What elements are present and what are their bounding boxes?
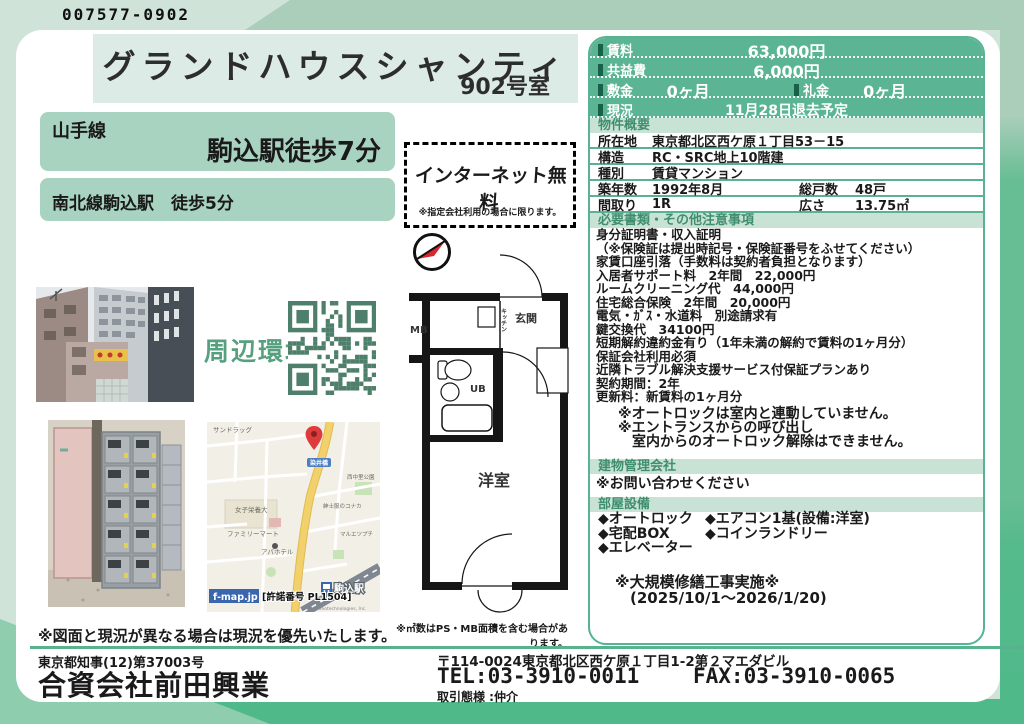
deposit-keymoney-row: 0ヶ月 0ヶ月 敷金 礼金 bbox=[590, 78, 983, 98]
renovation-note-line2: (2025/10/1～2026/1/20) bbox=[630, 587, 827, 608]
extra-note-line: 室内からのオートロック解除はできません。 bbox=[618, 435, 978, 449]
internet-free-badge: インターネット無料 ※指定会社利用の場合に限ります。 bbox=[404, 142, 576, 228]
label-marker bbox=[598, 84, 603, 96]
fee-label: 共益費 bbox=[607, 64, 646, 79]
extra-note-line: ※オートロックは室内と連動していません。 bbox=[618, 407, 978, 421]
notes-list: 身分証明書・収入証明 （※保険証は提出時記号・保険証番号をふせてください） 家賃… bbox=[596, 228, 981, 404]
figure-priority-note: ※図面と現況が異なる場合は現況を優先いたします。 bbox=[38, 625, 396, 646]
note-line: 電気・ｶﾞｽ・水道料 別途請求有 bbox=[596, 309, 981, 323]
note-line: 更新料：新賃料の1ヶ月分 bbox=[596, 390, 981, 404]
overview-row: 間取り1R 広さ13.75㎡ bbox=[590, 197, 983, 213]
plan-label-kitchen: キッチン bbox=[500, 308, 507, 332]
note-line: 鍵交換代 34100円 bbox=[596, 323, 981, 337]
deal-type: 取引態様 :仲介 bbox=[437, 688, 518, 705]
management-value: ※お問い合わせください bbox=[596, 473, 750, 493]
note-line: 住宅総合保険 2年間 20,000円 bbox=[596, 296, 981, 310]
rent-row: 63,000円 賃料 bbox=[590, 38, 983, 58]
label-marker bbox=[598, 44, 603, 56]
map-road-badge: 染井橋 bbox=[309, 459, 329, 467]
map-license: [許諾番号 PL1504] bbox=[262, 591, 351, 603]
room-number: 902号室 bbox=[460, 69, 550, 101]
equipment-item: ◆エアコン1基(設備:洋室) bbox=[705, 512, 870, 527]
price-table: 63,000円 賃料 6,000円 共益費 0ヶ月 0ヶ月 敷金 礼金 11月2… bbox=[590, 38, 983, 118]
label-marker bbox=[598, 104, 603, 116]
extra-note-line: ※エントランスからの呼び出し bbox=[618, 421, 978, 435]
label-marker bbox=[598, 64, 603, 76]
train-line-2-text: 南北線駒込駅 徒歩5分 bbox=[52, 189, 234, 214]
train-line-1-name: 山手線 bbox=[52, 117, 106, 143]
map-provider: f-map.jp bbox=[213, 592, 258, 603]
title-box: グランドハウスシャンティ 902号室 bbox=[93, 34, 578, 103]
reference-code: 007577-0902 bbox=[62, 5, 190, 24]
extra-notes: ※オートロックは室内と連動していません。 ※エントランスからの呼び出し 室内から… bbox=[618, 407, 978, 449]
svg-text:アパホテル: アパホテル bbox=[261, 548, 294, 556]
qr-code bbox=[288, 301, 376, 395]
map-copyright: © Geotechnologies, Inc. bbox=[312, 605, 367, 612]
rent-label: 賃料 bbox=[607, 44, 633, 59]
company-tel: TEL:03-3910-0011 bbox=[437, 664, 639, 688]
note-line: 家賃口座引落（手数料は契約者負担となります） bbox=[596, 255, 981, 269]
top-decor-wedge bbox=[230, 0, 1024, 30]
svg-text:西中里公園: 西中里公園 bbox=[347, 473, 375, 481]
note-line: （※保険証は提出時記号・保険証番号をふせてください） bbox=[596, 242, 981, 256]
plan-label-room: 洋室 bbox=[478, 471, 510, 490]
svg-text:サンドラッグ: サンドラッグ bbox=[213, 425, 253, 434]
plan-label-bath: UB bbox=[470, 384, 486, 395]
management-section-header: 建物管理会社 bbox=[590, 459, 983, 474]
train-line-1-walk: 駒込駅徒歩7分 bbox=[207, 131, 381, 168]
note-line: 身分証明書・収入証明 bbox=[596, 228, 981, 242]
fee-row: 6,000円 共益費 bbox=[590, 58, 983, 78]
svg-text:ファミリーマート: ファミリーマート bbox=[227, 530, 279, 538]
label-marker bbox=[794, 84, 799, 96]
note-line: 保証会社利用必須 bbox=[596, 350, 981, 364]
equipment-item: ◆エレベーター bbox=[598, 541, 693, 556]
train-line-1-box: 山手線 駒込駅徒歩7分 bbox=[40, 112, 395, 171]
note-line: 契約期間：2年 bbox=[596, 377, 981, 391]
equipment-item: ◆宅配BOX bbox=[598, 527, 693, 542]
internet-free-note: ※指定会社利用の場合に限ります。 bbox=[407, 205, 573, 218]
footer-divider bbox=[30, 646, 1024, 649]
property-flyer-page: 007577-0902 グランドハウスシャンティ 902号室 山手線 駒込駅徒歩… bbox=[0, 0, 1024, 724]
note-line: 入居者サポート料 2年間 22,000円 bbox=[596, 269, 981, 283]
company-fax: FAX:03-3910-0065 bbox=[693, 664, 895, 688]
key-money-label: 礼金 bbox=[803, 84, 829, 99]
equipment-column-2: ◆エアコン1基(設備:洋室) ◆コインランドリー bbox=[705, 512, 870, 541]
svg-text:女子栄養大: 女子栄養大 bbox=[235, 505, 268, 514]
svg-text:マルエツプチ: マルエツプチ bbox=[340, 531, 373, 538]
status-row: 11月28日退去予定 現況 bbox=[590, 98, 983, 118]
right-decor-band bbox=[1000, 0, 1024, 724]
equipment-item: ◆オートロック bbox=[598, 512, 693, 527]
status-label: 現況 bbox=[607, 104, 633, 119]
equipment-column-1: ◆オートロック ◆宅配BOX ◆エレベーター bbox=[598, 512, 693, 556]
equipment-item: ◆コインランドリー bbox=[705, 527, 870, 542]
building-photo bbox=[36, 287, 194, 402]
floor-plan: MB キッチン 玄関 UB 洋室 bbox=[400, 240, 580, 640]
info-panel: 63,000円 賃料 6,000円 共益費 0ヶ月 0ヶ月 敷金 礼金 11月2… bbox=[588, 36, 985, 645]
train-line-2-box: 南北線駒込駅 徒歩5分 bbox=[40, 178, 395, 221]
company-name: 合資会社前田興業 bbox=[38, 664, 270, 704]
mailbox-photo bbox=[48, 420, 185, 607]
note-line: 近隣トラブル解決支援サービス付保証プランあり bbox=[596, 363, 981, 377]
note-line: 短期解約違約金有り（1年未満の解約で賃料の1ヶ月分） bbox=[596, 336, 981, 350]
deposit-label: 敷金 bbox=[607, 84, 633, 99]
map-image: 染井橋 サンドラッグ 女子栄養大 ファミリーマート アパホテル 紳士服のコナカ … bbox=[207, 422, 380, 612]
equipment-section-header: 部屋設備 bbox=[590, 497, 983, 512]
svg-text:紳士服のコナカ: 紳士服のコナカ bbox=[323, 502, 362, 510]
status-value: 11月28日退去予定 bbox=[590, 100, 983, 120]
plan-label-mb: MB bbox=[410, 325, 428, 336]
note-line: ルームクリーニング代 44,000円 bbox=[596, 282, 981, 296]
plan-label-entrance: 玄関 bbox=[515, 311, 537, 325]
notes-section-header: 必要書類・その他注意事項 bbox=[590, 213, 983, 228]
